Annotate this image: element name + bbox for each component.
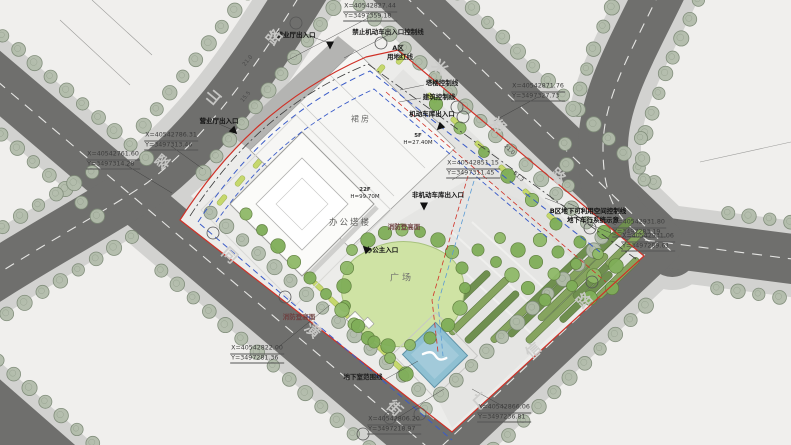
street-tree bbox=[163, 86, 178, 101]
street-tree bbox=[219, 219, 234, 234]
street-tree bbox=[139, 151, 154, 166]
street-tree bbox=[42, 168, 56, 182]
street-tree bbox=[12, 43, 26, 57]
street-tree bbox=[433, 387, 448, 402]
street-tree bbox=[559, 137, 572, 150]
street-tree bbox=[13, 209, 28, 224]
street-tree bbox=[299, 287, 314, 302]
street-tree bbox=[215, 20, 228, 33]
street-tree bbox=[764, 213, 776, 225]
garden-tree bbox=[491, 257, 502, 268]
street-tree bbox=[252, 247, 266, 261]
street-tree bbox=[480, 344, 495, 359]
street-tree bbox=[519, 158, 533, 172]
street-tree bbox=[541, 73, 556, 88]
garden-tree bbox=[335, 303, 350, 318]
street-tree bbox=[267, 360, 279, 372]
street-tree bbox=[90, 209, 105, 224]
street-tree bbox=[228, 3, 243, 18]
garden-tree bbox=[460, 283, 471, 294]
garden-tree bbox=[609, 259, 624, 274]
street-tree bbox=[742, 209, 757, 224]
street-tree bbox=[27, 156, 39, 168]
street-tree bbox=[107, 123, 122, 138]
street-tree bbox=[298, 385, 313, 400]
street-tree bbox=[170, 277, 185, 292]
garden-tree bbox=[567, 281, 578, 292]
garden-tree bbox=[571, 259, 582, 270]
street-tree bbox=[17, 295, 32, 310]
street-tree bbox=[53, 274, 67, 289]
street-tree bbox=[753, 288, 765, 300]
street-tree bbox=[250, 345, 265, 360]
street-tree bbox=[201, 36, 216, 51]
street-tree bbox=[481, 16, 493, 28]
street-tree bbox=[548, 386, 561, 399]
garden-tree bbox=[415, 227, 426, 238]
garden-tree bbox=[429, 97, 442, 110]
street-tree bbox=[89, 252, 103, 266]
street-tree bbox=[532, 399, 547, 414]
street-tree bbox=[347, 428, 359, 440]
street-tree bbox=[315, 400, 328, 413]
street-tree bbox=[22, 380, 37, 395]
street-tree bbox=[505, 144, 517, 156]
street-tree bbox=[496, 30, 510, 44]
street-tree bbox=[187, 292, 199, 304]
garden-tree bbox=[287, 255, 300, 268]
site-plan-drawing bbox=[0, 0, 791, 445]
street-tree bbox=[284, 274, 297, 287]
street-tree bbox=[658, 66, 673, 81]
street-tree bbox=[597, 20, 610, 33]
garden-tree bbox=[552, 246, 564, 258]
street-tree bbox=[573, 82, 587, 96]
street-tree bbox=[581, 63, 593, 75]
garden-tree bbox=[505, 268, 520, 283]
street-tree bbox=[59, 83, 74, 98]
street-tree bbox=[634, 131, 647, 144]
street-tree bbox=[674, 31, 689, 46]
street-tree bbox=[638, 174, 650, 186]
street-tree bbox=[510, 315, 525, 330]
street-tree bbox=[557, 89, 569, 101]
street-tree bbox=[773, 291, 787, 305]
street-tree bbox=[75, 196, 88, 209]
garden-tree bbox=[548, 268, 560, 280]
street-tree bbox=[39, 395, 52, 408]
street-tree bbox=[235, 332, 248, 345]
street-tree bbox=[353, 0, 365, 11]
street-tree bbox=[54, 408, 69, 423]
street-tree bbox=[550, 187, 563, 200]
street-tree bbox=[204, 206, 217, 219]
garden-tree bbox=[605, 281, 618, 294]
garden-tree bbox=[271, 239, 286, 254]
garden-tree bbox=[583, 291, 598, 306]
street-tree bbox=[150, 103, 163, 116]
street-tree bbox=[527, 60, 540, 73]
street-tree bbox=[49, 187, 63, 201]
garden-tree bbox=[539, 294, 551, 306]
garden-tree bbox=[453, 301, 468, 316]
street-tree bbox=[666, 51, 679, 64]
street-tree bbox=[222, 133, 237, 148]
garden-tree bbox=[361, 233, 376, 248]
garden-tree bbox=[340, 261, 353, 274]
street-tree bbox=[518, 415, 530, 427]
garden-tree bbox=[405, 340, 416, 351]
street-tree bbox=[210, 150, 223, 163]
garden-tree bbox=[472, 244, 484, 256]
street-tree bbox=[562, 370, 577, 385]
street-tree bbox=[368, 12, 382, 26]
street-tree bbox=[412, 383, 426, 397]
street-tree bbox=[76, 98, 88, 110]
garden-tree bbox=[424, 332, 436, 344]
street-tree bbox=[645, 106, 659, 120]
street-tree bbox=[236, 117, 248, 129]
street-tree bbox=[398, 42, 411, 55]
garden-tree bbox=[304, 272, 316, 284]
street-tree bbox=[202, 305, 216, 319]
street-tree bbox=[474, 114, 487, 127]
street-tree bbox=[624, 314, 637, 327]
street-tree bbox=[71, 423, 83, 435]
street-tree bbox=[261, 83, 276, 98]
street-tree bbox=[326, 0, 341, 15]
garden-tree bbox=[521, 281, 534, 294]
street-tree bbox=[608, 327, 623, 342]
street-tree bbox=[236, 234, 248, 246]
street-tree bbox=[196, 165, 211, 180]
street-tree bbox=[136, 118, 151, 133]
street-tree bbox=[443, 85, 457, 99]
street-tree bbox=[382, 26, 397, 41]
garden-tree bbox=[399, 367, 414, 382]
street-tree bbox=[27, 55, 42, 70]
street-tree bbox=[67, 176, 82, 191]
street-tree bbox=[92, 111, 106, 125]
garden-tree bbox=[574, 236, 586, 248]
street-tree bbox=[602, 132, 615, 145]
street-tree bbox=[566, 101, 581, 116]
garden-tree bbox=[378, 226, 391, 239]
street-tree bbox=[106, 240, 121, 255]
garden-tree bbox=[347, 245, 358, 256]
street-tree bbox=[72, 264, 84, 276]
street-tree bbox=[465, 1, 480, 16]
street-tree bbox=[617, 146, 632, 161]
street-tree bbox=[653, 87, 665, 99]
street-tree bbox=[330, 413, 345, 428]
street-tree bbox=[510, 44, 525, 59]
garden-tree bbox=[550, 218, 562, 230]
street-tree bbox=[86, 166, 99, 179]
street-tree bbox=[562, 180, 574, 192]
street-tree bbox=[125, 230, 138, 243]
street-tree bbox=[287, 50, 302, 65]
street-tree bbox=[124, 138, 137, 151]
street-tree bbox=[638, 298, 653, 313]
garden-tree bbox=[529, 255, 542, 268]
garden-tree bbox=[381, 339, 396, 354]
street-tree bbox=[449, 373, 463, 387]
garden-tree bbox=[337, 279, 352, 294]
street-tree bbox=[275, 67, 288, 80]
street-tree bbox=[189, 53, 203, 67]
street-tree bbox=[465, 360, 477, 372]
street-tree bbox=[249, 100, 263, 114]
street-tree bbox=[604, 0, 619, 15]
street-tree bbox=[502, 429, 516, 443]
garden-tree bbox=[368, 336, 380, 348]
street-tree bbox=[594, 343, 606, 355]
street-tree bbox=[177, 70, 189, 82]
street-tree bbox=[218, 317, 233, 332]
garden-tree bbox=[495, 233, 506, 244]
street-tree bbox=[560, 158, 575, 173]
garden-tree bbox=[321, 289, 332, 300]
garden-tree bbox=[385, 353, 396, 364]
street-tree bbox=[586, 42, 601, 57]
garden-tree bbox=[441, 318, 454, 331]
garden-tree bbox=[511, 243, 526, 258]
garden-tree bbox=[257, 225, 268, 236]
street-tree bbox=[10, 141, 25, 156]
site-plan: 禁止机动车出入口控制线营业厅出入口A区用地红线塔楼控制线建筑控制线机动车库出入口… bbox=[0, 0, 791, 445]
street-tree bbox=[316, 302, 328, 314]
garden-tree bbox=[351, 319, 364, 332]
garden-tree bbox=[431, 233, 446, 248]
street-tree bbox=[44, 70, 57, 83]
street-tree bbox=[586, 117, 601, 132]
street-tree bbox=[32, 199, 44, 211]
street-tree bbox=[635, 152, 650, 167]
garden-tree bbox=[396, 224, 408, 236]
street-tree bbox=[496, 330, 509, 343]
street-tree bbox=[282, 373, 296, 387]
street-tree bbox=[722, 207, 735, 220]
street-tree bbox=[731, 284, 746, 299]
street-tree bbox=[711, 282, 724, 295]
street-tree bbox=[36, 285, 49, 298]
street-tree bbox=[155, 264, 168, 277]
street-tree bbox=[7, 367, 21, 381]
garden-tree bbox=[456, 262, 468, 274]
street-tree bbox=[578, 356, 592, 370]
street-tree bbox=[0, 307, 14, 321]
garden-tree bbox=[240, 208, 252, 220]
street-tree bbox=[526, 301, 540, 315]
street-tree bbox=[267, 260, 282, 275]
street-tree bbox=[314, 17, 328, 31]
street-tree bbox=[683, 12, 697, 26]
